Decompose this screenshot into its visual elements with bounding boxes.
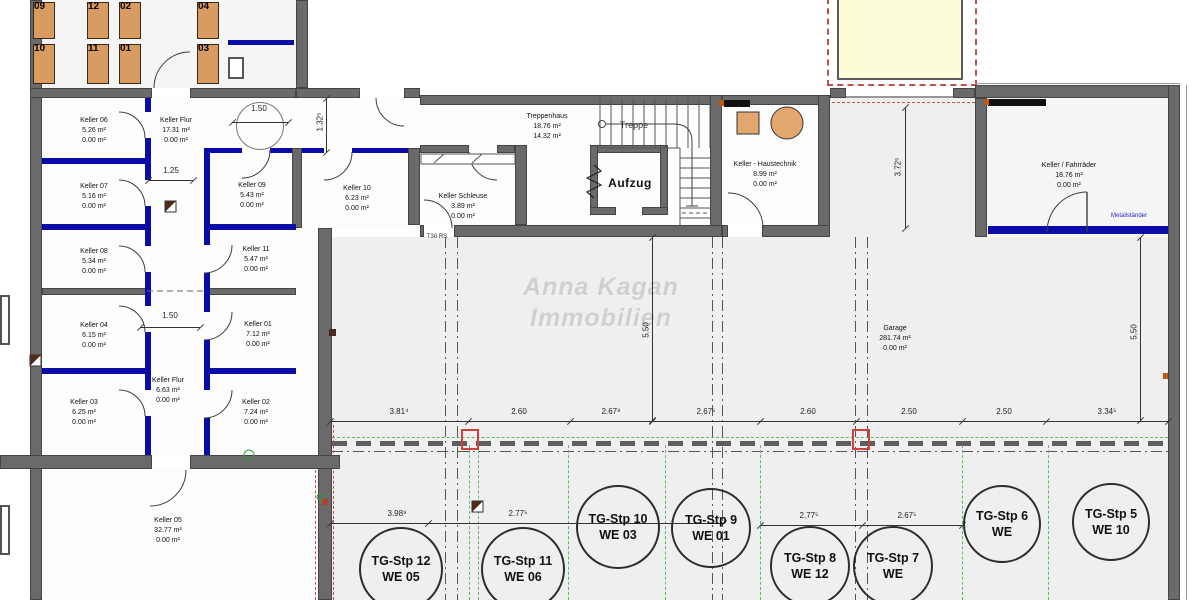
- dimension-line: [330, 421, 1168, 422]
- dimension-line: [326, 98, 327, 152]
- elevator-shaft-wall: [660, 145, 668, 215]
- wall: [1168, 85, 1180, 600]
- wall: [953, 88, 975, 98]
- parking-spot-10: TG-Stp 10WE 03: [576, 485, 660, 569]
- room-label-treppenhaus: Treppenhaus18.76 m²14.32 m²: [527, 112, 568, 142]
- room-label-keller-04: Keller 046.15 m²0.00 m²: [80, 321, 108, 351]
- outline: [975, 83, 1180, 84]
- storage-number: 10: [34, 43, 45, 54]
- dimension-label: 2.67⁸: [602, 407, 621, 416]
- parking-spot-9: TG-Stp 9WE 01: [671, 488, 751, 568]
- wall: [722, 95, 830, 105]
- dimension-line: [330, 523, 723, 524]
- elevator-shaft-wall: [590, 145, 598, 215]
- blue-wall: [145, 138, 151, 180]
- dimension-label: 2.67⁵: [697, 407, 716, 416]
- dimension-line: [148, 180, 193, 181]
- blue-wall: [145, 272, 151, 306]
- dimension-label: 2.77⁵: [509, 509, 528, 518]
- blue-wall: [204, 153, 210, 245]
- wall: [722, 225, 728, 237]
- blue-wall: [42, 368, 145, 374]
- blue-wall: [228, 40, 294, 45]
- storage-number: 12: [88, 1, 99, 12]
- elevator-shaft-wall: [590, 145, 668, 153]
- room-label-haustechnik: Keller - Haustechnik8.99 m²0.00 m²: [734, 160, 797, 190]
- wall: [497, 145, 515, 153]
- dimension-label: 1.25: [163, 166, 179, 175]
- blue-wall: [145, 416, 151, 455]
- watermark: Anna Kagan Immobilien: [523, 272, 679, 335]
- storage-number: 11: [88, 43, 99, 54]
- wall: [204, 288, 296, 295]
- dimension-line: [1140, 237, 1141, 420]
- floor-plan: Anna Kagan Immobilien: [0, 0, 1200, 600]
- wall: [975, 98, 987, 237]
- dimension-label: 2.67⁵: [898, 511, 917, 520]
- room-label-keller-07: Keller 075.16 m²0.00 m²: [80, 182, 108, 212]
- storage-number: 04: [198, 1, 209, 12]
- room-label-keller-schleuse: Keller Schleuse3.89 m²0.00 m²: [439, 192, 488, 222]
- dimension-label-vertical: 5.50: [642, 322, 651, 338]
- wall: [420, 145, 469, 153]
- wall: [42, 288, 147, 295]
- wall: [420, 225, 424, 237]
- room-label-keller-10: Keller 106.23 m²0.00 m²: [343, 184, 371, 214]
- dimension-line: [140, 327, 200, 328]
- wall: [762, 225, 830, 237]
- fire-door-label: T30 RS: [427, 234, 447, 240]
- bike-rack-label: Metallständer: [1111, 213, 1147, 219]
- dimension-label: 3.34⁵: [1098, 407, 1117, 416]
- wall: [830, 88, 846, 98]
- storage-number: 02: [120, 1, 131, 12]
- room-label-keller-01: Keller 017.12 m²0.00 m²: [244, 320, 272, 350]
- fire-line-red-v: [333, 425, 334, 600]
- parking-spot-7: TG-Stp 7WE: [853, 526, 933, 600]
- dimension-label: 2.60: [800, 407, 816, 416]
- parking-spot-6: TG-Stp 6WE: [963, 485, 1041, 563]
- column-axis-v: [445, 237, 446, 600]
- room-label-keller-flur: Keller Flur17.31 m²0.00 m²: [160, 116, 192, 146]
- storage-number: 01: [120, 43, 131, 54]
- elevator-label: Aufzug: [608, 176, 652, 190]
- dimension-label: 2.77⁵: [800, 511, 819, 520]
- dimension-label-vertical: 5.50: [1130, 324, 1139, 340]
- wall: [420, 95, 722, 105]
- dimension-line: [232, 122, 288, 123]
- stairs-label: Treppe: [620, 120, 648, 130]
- blue-wall: [204, 418, 210, 455]
- room-label-keller-05: Keller 0532.77 m²0.00 m²: [154, 516, 182, 546]
- wall: [404, 88, 420, 98]
- wall: [30, 88, 152, 98]
- bike-rack-bar: [988, 226, 1168, 234]
- dimension-label: 2.50: [996, 407, 1012, 416]
- blue-wall: [204, 340, 210, 390]
- wall: [710, 95, 722, 237]
- wall: [190, 88, 296, 98]
- dimension-label: 1.50: [251, 104, 267, 113]
- parking-line-green-v: [1048, 445, 1049, 600]
- parking-spot-8: TG-Stp 8WE 12: [770, 526, 850, 600]
- room-label-keller-08: Keller 085.34 m²0.00 m²: [80, 247, 108, 277]
- blue-wall: [302, 148, 324, 153]
- wall: [408, 148, 420, 225]
- room-label-garage: Garage281.74 m²0.00 m²: [879, 324, 911, 354]
- wall: [515, 145, 527, 225]
- dimension-label: 3.81⁴: [389, 407, 408, 416]
- dimension-label: 3.98⁹: [388, 509, 407, 518]
- blue-wall: [145, 206, 151, 246]
- garage-door-lintel: [846, 96, 953, 98]
- dimension-label: 2.50: [901, 407, 917, 416]
- elevator-shaft-wall: [590, 207, 616, 215]
- room-label-keller-flur-sued: Keller Flur6.63 m²0.00 m²: [152, 376, 184, 406]
- blue-wall: [204, 368, 296, 374]
- blue-wall: [145, 98, 151, 112]
- dimension-label-vertical: 1.32⁵: [316, 113, 325, 132]
- blue-wall: [42, 158, 145, 164]
- wall: [190, 455, 340, 469]
- room-label-keller-09: Keller 095.43 m²0.00 m²: [238, 181, 266, 211]
- dimension-label-vertical: 3.72⁵: [894, 158, 903, 177]
- parking-spot-5: TG-Stp 5WE 10: [1072, 483, 1150, 561]
- blue-wall: [204, 273, 210, 312]
- blue-wall: [204, 224, 296, 230]
- blue-wall: [145, 332, 151, 390]
- blue-wall: [352, 148, 408, 153]
- ramp-area: [837, 0, 963, 80]
- column-axis-v: [855, 237, 856, 600]
- room-label-keller-06: Keller 065.26 m²0.00 m²: [80, 116, 108, 146]
- storage-number: 03: [198, 43, 209, 54]
- wall: [292, 148, 302, 228]
- blue-wall: [270, 148, 292, 153]
- wall: [975, 85, 1180, 98]
- dimension-label: 2.60: [511, 407, 527, 416]
- dimension-line: [905, 107, 906, 228]
- column-marker-red: [461, 429, 479, 450]
- storage-number: 09: [34, 1, 45, 12]
- wall: [318, 228, 332, 600]
- dimension-label: 1.50: [162, 311, 178, 320]
- wall: [818, 95, 830, 237]
- room-label-keller-03: Keller 036.25 m²0.00 m²: [70, 398, 98, 428]
- room-label-keller-11: Keller 115.47 m²0.00 m²: [242, 245, 269, 275]
- wall: [296, 0, 308, 88]
- room-label-fahrraeder: Keller / Fahrräder18.76 m²0.00 m²: [1042, 161, 1096, 191]
- wall: [454, 225, 722, 237]
- elevator-shaft-wall: [642, 207, 668, 215]
- blue-wall: [42, 224, 145, 230]
- room-label-keller-02: Keller 027.24 m²0.00 m²: [242, 398, 270, 428]
- light-well: [0, 295, 10, 345]
- floor-driveway: [830, 98, 975, 237]
- light-well: [0, 505, 10, 555]
- wall: [0, 455, 152, 469]
- column-axis-v: [457, 237, 458, 600]
- cabinet: [228, 57, 244, 79]
- dimension-line: [652, 237, 653, 420]
- fire-line-red-v: [315, 470, 316, 600]
- outline: [1186, 85, 1187, 600]
- column-marker-red: [852, 429, 870, 450]
